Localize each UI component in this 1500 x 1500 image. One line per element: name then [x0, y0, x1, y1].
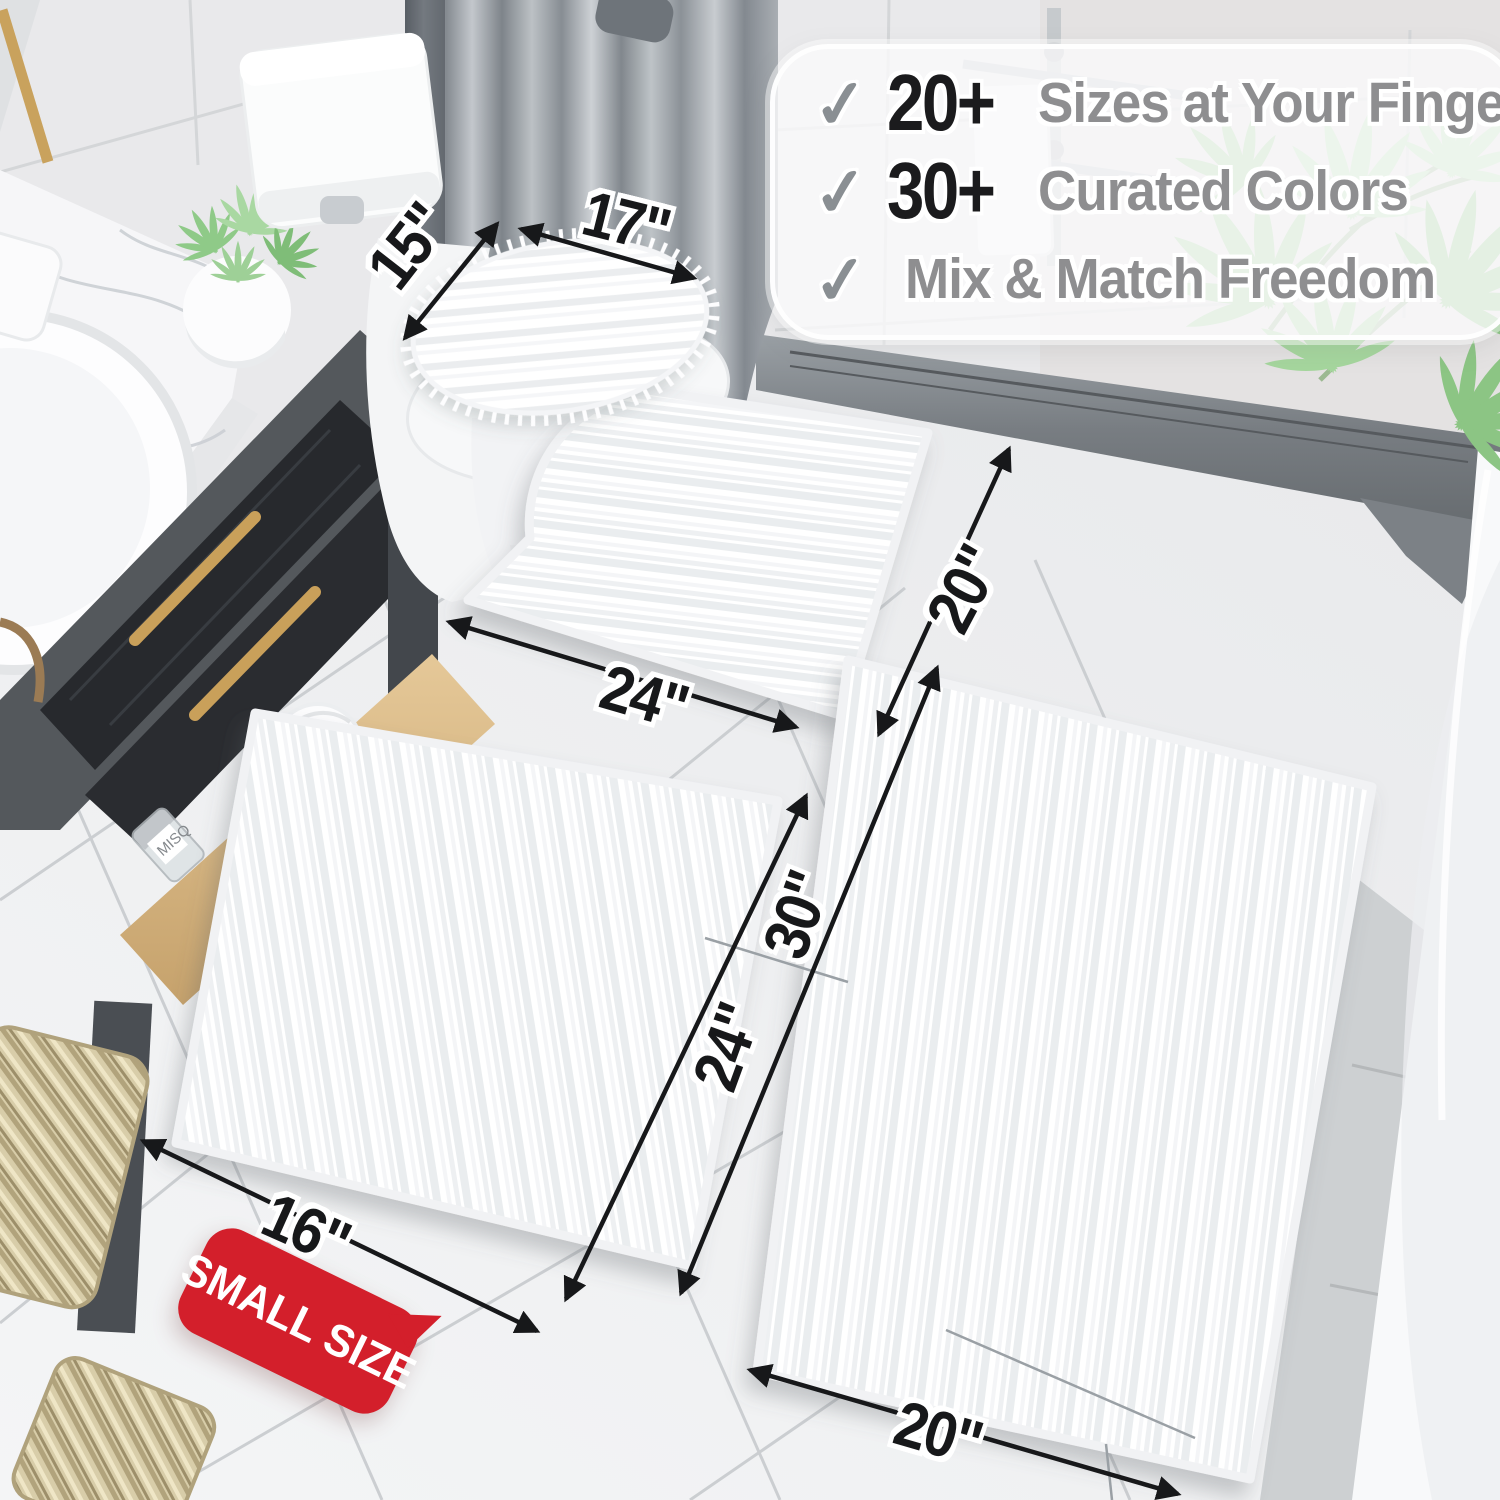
check-icon: ✓ [810, 154, 890, 227]
banner-number: 20+ [887, 63, 993, 143]
banner-number: 30+ [887, 151, 993, 231]
arrow-smallrug-24in [566, 796, 806, 1299]
feature-banner: ✓ 20+ Sizes at Your Fingertips ✓ 30+ Cur… [770, 44, 1500, 340]
banner-row-colors: ✓ 30+ Curated Colors [813, 149, 1493, 233]
banner-row-mixmatch: ✓ Mix & Match Freedom [813, 237, 1493, 321]
banner-label: Curated Colors [1038, 163, 1408, 220]
check-icon: ✓ [810, 242, 890, 315]
check-icon: ✓ [810, 66, 890, 139]
banner-row-sizes: ✓ 20+ Sizes at Your Fingertips [813, 61, 1493, 145]
banner-label: Mix & Match Freedom [905, 251, 1435, 308]
banner-label: Sizes at Your Fingertips [1038, 75, 1500, 132]
